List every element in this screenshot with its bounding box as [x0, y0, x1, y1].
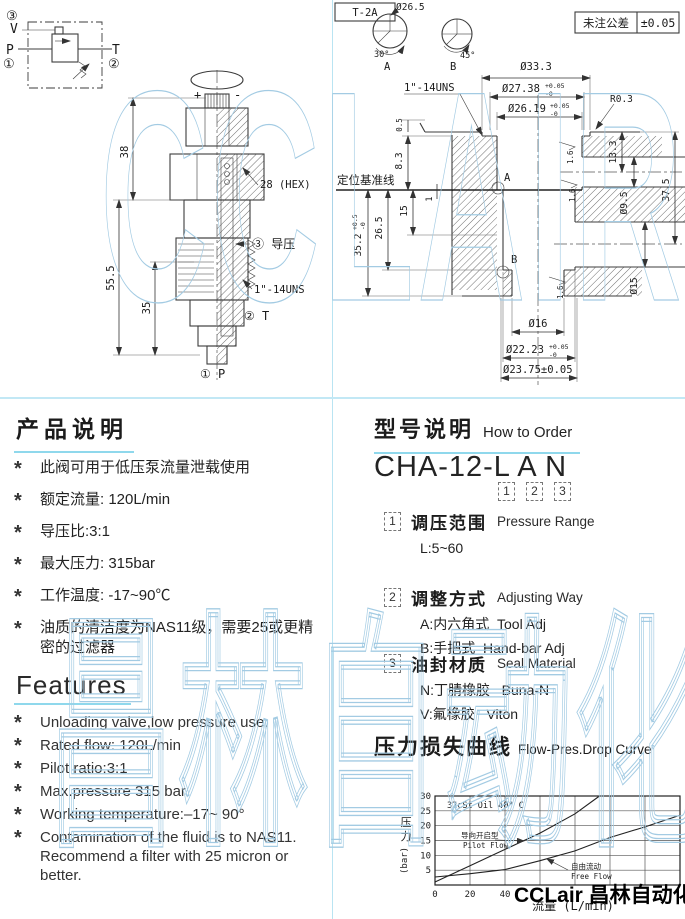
- symbol-port2-num: ②: [108, 57, 120, 72]
- dim-35: 35: [141, 302, 153, 315]
- dim-8-3: 8.3: [394, 152, 405, 169]
- product-section-title: 产品说明: [14, 410, 134, 453]
- bullet-star-icon: *: [14, 587, 22, 607]
- svg-text:25: 25: [420, 807, 431, 817]
- dim-27-38-sub: -0: [545, 90, 553, 98]
- svg-text:自由流动: 自由流动: [571, 861, 601, 871]
- curve-title-en: Flow-Pres.Drop Curve: [518, 742, 652, 757]
- tolerance-value: ±0.05: [641, 16, 676, 30]
- bullet-star-icon: *: [14, 783, 22, 802]
- list-item: *导压比:3:1: [14, 522, 324, 542]
- order-title-en: How to Order: [483, 424, 572, 441]
- dim-35-2-sup: +0.5: [351, 214, 359, 230]
- order-item-pressure-range: 1 调压范围 Pressure Range L:5~60: [384, 509, 595, 558]
- detail-b-angle: 45°: [460, 51, 475, 61]
- digit-box-1: 1: [498, 482, 515, 501]
- dim-26-19: Ø26.19: [508, 103, 546, 115]
- finish-mark: 1.6: [561, 180, 577, 202]
- svg-text:(bar): (bar): [400, 847, 410, 874]
- finish-mark: 1.6: [549, 277, 565, 299]
- svg-text:1.6: 1.6: [568, 188, 577, 202]
- cavity-thread-label: 1"-14UNS: [404, 82, 455, 94]
- dim-22-23-sup: +0.05: [549, 343, 569, 351]
- point-b-label: B: [511, 254, 517, 266]
- rotate-minus: -: [234, 88, 241, 102]
- dim-0-5: 0.5: [395, 118, 404, 132]
- order-title-cn: 型号说明: [374, 417, 474, 442]
- list-item: *额定流量: 120L/min: [14, 490, 324, 510]
- detail-a-label: A: [384, 61, 391, 73]
- dim-22-23: Ø22.23: [506, 344, 544, 356]
- hydraulic-symbol: ③ V P ① T ②: [3, 9, 120, 88]
- model-code: CHA-12-L A N: [374, 451, 567, 484]
- brand-logo-text: CCLair 昌林自动化: [514, 879, 685, 909]
- digit-box-3: 3: [554, 482, 571, 501]
- bullet-star-icon: *: [14, 555, 22, 575]
- label-thread: 1"-14UNS: [254, 284, 305, 296]
- svg-text:20: 20: [420, 822, 431, 832]
- dim-23-75: Ø23.75±0.05: [503, 364, 573, 376]
- dim-33-3: Ø33.3: [520, 61, 552, 73]
- list-item: *Max.pressure 315 bar: [14, 782, 326, 801]
- model-digit-boxes: 1 2 3: [498, 482, 571, 501]
- dim-27-38: Ø27.38: [502, 83, 540, 95]
- bullet-star-icon: *: [14, 806, 22, 825]
- bullet-star-icon: *: [14, 491, 22, 511]
- dim-r0-3: R0.3: [610, 94, 633, 105]
- list-item: *此阀可用于低压泵流量泄载使用: [14, 458, 324, 478]
- tolerance-label: 未注公差: [583, 16, 629, 30]
- label-p-port: ① P: [200, 367, 225, 381]
- symbol-port1-num: ①: [3, 57, 15, 72]
- dim-38: 38: [119, 146, 131, 159]
- svg-text:20: 20: [465, 890, 476, 900]
- bullet-star-icon: *: [14, 737, 22, 756]
- svg-text:导向开启型: 导向开启型: [461, 830, 499, 840]
- order-item-adjusting-way: 2 调整方式 Adjusting Way A:内六角式 Tool Adj B:手…: [384, 585, 583, 658]
- datasheet-page: CCLAIR 昌林自动化 ③ V P ① T ②: [0, 0, 685, 919]
- list-item: *工作温度: -17~90℃: [14, 586, 324, 606]
- dim-35-2-sub: -0: [359, 222, 367, 230]
- product-bullet-list: *此阀可用于低压泵流量泄载使用 *额定流量: 120L/min *导压比:3:1…: [14, 458, 324, 670]
- dim-15-dia: Ø15: [629, 277, 640, 294]
- list-item: *Rated flow: 120L/min: [14, 736, 326, 755]
- svg-text:力: 力: [401, 830, 412, 843]
- curve-title-cn: 压力损失曲线: [374, 736, 512, 759]
- detail-a-angle: 30°: [374, 50, 389, 60]
- detail-views: Ø26.5 30° A 45° B 1"-14UNS: [373, 2, 482, 135]
- horizontal-divider: [0, 397, 685, 399]
- dim-15: 15: [399, 205, 410, 216]
- svg-text:40: 40: [500, 890, 511, 900]
- features-bullet-list: *Unloading valve,low pressure use. *Rate…: [14, 713, 326, 889]
- cavity-drawing: T-2A 未注公差 ±0.05 Ø26.5 30° A 45° B 1"-14U…: [332, 0, 685, 395]
- dim-26-5: 26.5: [374, 217, 385, 240]
- drawing-tag: T-2A: [352, 7, 378, 19]
- dim-35-2: 35.2: [353, 234, 364, 257]
- dim-16: Ø16: [529, 318, 548, 330]
- item-number-box: 3: [384, 654, 401, 673]
- datum-label: 定位基准线: [337, 173, 395, 187]
- bullet-star-icon: *: [14, 459, 22, 479]
- symbol-port-t: T: [112, 43, 120, 58]
- svg-text:Pilot Flow: Pilot Flow: [463, 841, 509, 850]
- svg-text:1.6: 1.6: [566, 150, 575, 164]
- list-item: *Unloading valve,low pressure use.: [14, 713, 326, 732]
- svg-text:5: 5: [426, 866, 431, 876]
- dim-13-3: 13.3: [608, 141, 619, 164]
- dim-1: 1: [425, 196, 435, 201]
- point-a-label: A: [504, 172, 511, 184]
- detail-a-diameter: Ø26.5: [396, 2, 425, 13]
- detail-b-label: B: [450, 61, 456, 73]
- dim-26-19-sub: -0: [550, 110, 558, 118]
- svg-text:10: 10: [420, 851, 431, 861]
- sheet-tags: T-2A 未注公差 ±0.05: [335, 3, 679, 33]
- label-t-port: ② T: [244, 309, 269, 323]
- order-item-seal-material: 3 油封材质 Seal Material N:丁腈橡胶 Buna-N V:氟橡胶…: [384, 651, 576, 724]
- valve-section-drawing: ③ V P ① T ② + -: [0, 0, 332, 395]
- curve-section-title: 压力损失曲线Flow-Pres.Drop Curve: [374, 731, 652, 761]
- list-item: *Working temperature:–17~ 90°: [14, 805, 326, 824]
- svg-text:压: 压: [401, 816, 412, 829]
- svg-text:32cSt Oil 40° C: 32cSt Oil 40° C: [447, 801, 524, 811]
- dim-22-23-sub: -0: [549, 351, 557, 359]
- bullet-star-icon: *: [14, 714, 22, 733]
- valve-body: + -: [170, 70, 264, 380]
- bullet-star-icon: *: [14, 619, 22, 639]
- label-hex: 28 (HEX): [260, 179, 311, 191]
- rotate-plus: +: [194, 88, 201, 102]
- list-item: *Contamination of the fluid is to NAS11.…: [14, 828, 326, 885]
- list-item: *油质的清洁度为NAS11级，需要25或更精密的过滤器: [14, 618, 324, 658]
- dim-9-5: Ø9.5: [619, 192, 630, 215]
- symbol-port-p: P: [6, 43, 14, 58]
- finish-mark: 1.6: [559, 142, 575, 164]
- item-number-box: 1: [384, 512, 401, 531]
- dim-27-38-sup: +0.05: [545, 82, 565, 90]
- symbol-port-v: V: [10, 22, 18, 37]
- bullet-star-icon: *: [14, 523, 22, 543]
- order-section-title: 型号说明How to Order: [374, 412, 580, 454]
- dim-26-19-sup: +0.05: [550, 102, 570, 110]
- dim-37-5: 37.5: [661, 179, 672, 202]
- valve-dimensions: 38 55.5 35 28 (HEX) ③ 导压 1"-14UNS ② T ① …: [105, 98, 311, 381]
- bullet-star-icon: *: [14, 829, 22, 848]
- svg-text:1.6: 1.6: [556, 285, 565, 299]
- features-section-title: Features: [14, 670, 131, 705]
- label-pilot-port: ③ 导压: [252, 237, 295, 251]
- svg-text:0: 0: [432, 890, 437, 900]
- list-item: *Pilot ratio:3:1: [14, 759, 326, 778]
- bullet-star-icon: *: [14, 760, 22, 779]
- svg-text:15: 15: [420, 837, 431, 847]
- digit-box-2: 2: [526, 482, 543, 501]
- svg-text:30: 30: [420, 792, 431, 802]
- list-item: *最大压力: 315bar: [14, 554, 324, 574]
- item-number-box: 2: [384, 588, 401, 607]
- dim-55-5: 55.5: [105, 265, 117, 290]
